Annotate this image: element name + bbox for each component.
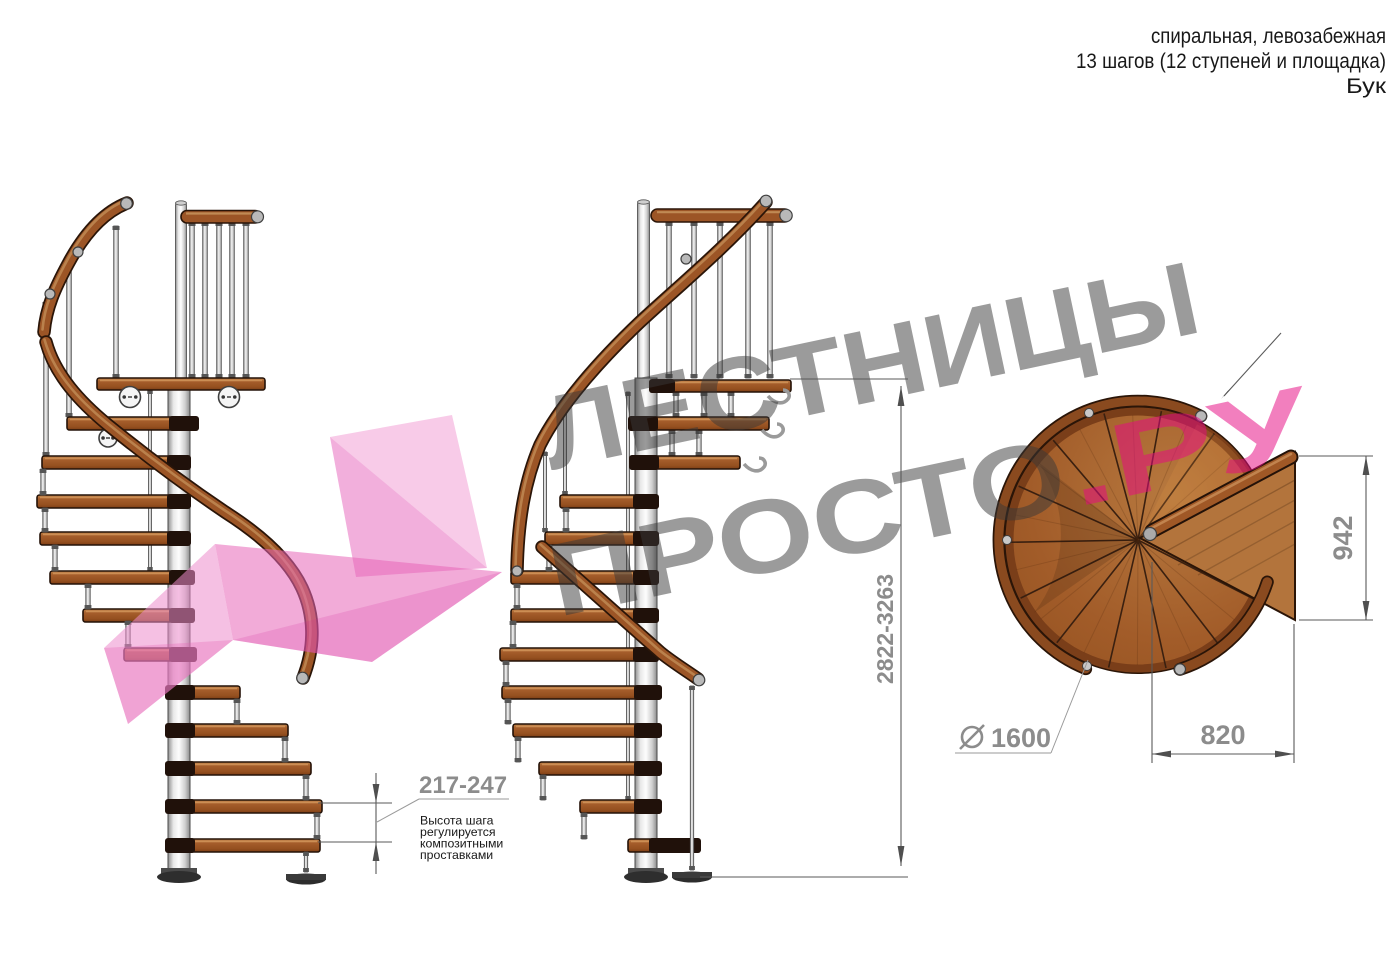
svg-text:1600: 1600	[991, 723, 1051, 753]
svg-text:проставками: проставками	[420, 848, 493, 862]
svg-text:2822-3263: 2822-3263	[872, 574, 898, 684]
svg-text:Бук: Бук	[1346, 74, 1387, 98]
svg-text:820: 820	[1200, 720, 1245, 750]
svg-text:942: 942	[1328, 515, 1358, 560]
svg-text:217-247: 217-247	[419, 772, 507, 799]
svg-text:13 шагов (12 ступеней и площад: 13 шагов (12 ступеней и площадка)	[1076, 49, 1386, 73]
svg-text:спиральная, левозабежная: спиральная, левозабежная	[1151, 24, 1386, 48]
